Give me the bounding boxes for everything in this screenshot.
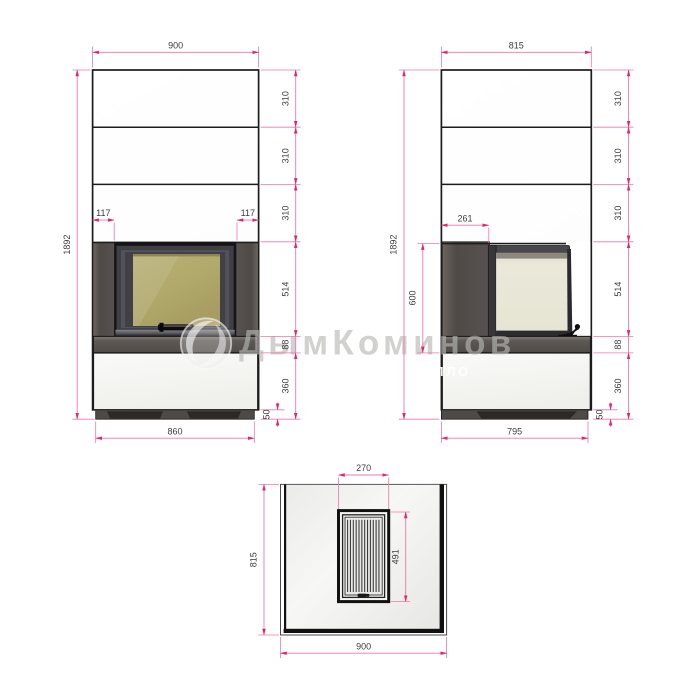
svg-text:261: 261 (457, 213, 472, 223)
svg-text:1892: 1892 (62, 235, 72, 255)
svg-text:50: 50 (594, 409, 604, 419)
svg-text:88: 88 (613, 340, 623, 350)
svg-text:1892: 1892 (389, 235, 399, 255)
svg-text:815: 815 (509, 41, 524, 51)
svg-text:860: 860 (167, 427, 182, 437)
svg-text:ТЕПЛО: ТЕПЛО (413, 365, 471, 379)
svg-text:514: 514 (613, 282, 623, 297)
svg-text:600: 600 (407, 290, 417, 305)
svg-text:310: 310 (613, 91, 623, 106)
svg-text:88: 88 (280, 340, 290, 350)
svg-text:310: 310 (280, 206, 290, 221)
svg-text:117: 117 (96, 208, 110, 218)
svg-text:815: 815 (249, 552, 259, 567)
svg-text:491: 491 (390, 549, 400, 564)
svg-text:795: 795 (507, 427, 522, 437)
svg-text:900: 900 (168, 41, 183, 51)
svg-text:310: 310 (280, 91, 290, 106)
svg-text:310: 310 (280, 148, 290, 163)
svg-text:360: 360 (280, 378, 290, 393)
svg-text:900: 900 (356, 641, 371, 651)
svg-text:310: 310 (613, 148, 623, 163)
svg-text:514: 514 (280, 282, 290, 297)
svg-text:360: 360 (613, 378, 623, 393)
svg-text:117: 117 (241, 208, 255, 218)
svg-text:310: 310 (613, 206, 623, 221)
svg-text:270: 270 (356, 463, 371, 473)
svg-text:50: 50 (261, 409, 271, 419)
